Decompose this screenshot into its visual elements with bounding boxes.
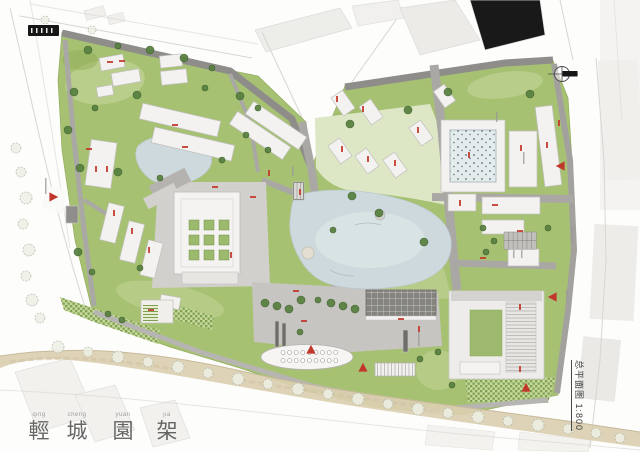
courtyard-garden-cell [219,220,229,230]
oval-dot [301,359,305,363]
sketch-tree [52,341,64,353]
building [448,194,476,211]
building [275,321,279,347]
watermark-pinyin: qing [24,412,54,419]
sketch-tree [35,313,45,323]
building-label-mark [336,96,338,102]
tree [114,168,122,176]
building-label-mark [546,142,548,148]
sketch-tree [41,16,49,24]
u-building-roofbar [451,291,542,301]
sketch-tree [292,383,304,395]
parking-cell [532,241,537,250]
oval-dot [334,359,338,363]
watermark-char-3: yuan 園 [108,412,138,443]
watermark-glyph: 架 [152,419,182,443]
tree [449,382,455,388]
tree [526,90,534,98]
parking-cell [518,241,523,250]
parking-cell [509,232,514,241]
site-plan-page: qing 輕 cheng 城 yuan 園 jia 架 总平面图 1:800 [0,0,640,452]
tree [236,92,244,100]
glass-roof-hall [366,290,436,316]
u-building-southbar [460,362,500,374]
tree [297,329,303,335]
tree [255,105,261,111]
u-building-terrace [506,302,536,372]
logo-glyphs [31,28,56,33]
tree [339,302,347,310]
building-label-mark [480,257,486,259]
main-building-annex [182,272,238,284]
tree [273,302,281,310]
building-label-mark [95,166,97,172]
tree [348,192,356,200]
building-label-mark [519,304,521,310]
courtyard-garden-cell [204,220,214,230]
annotation-mark [523,152,525,164]
oval-dot [288,351,292,355]
sketch-tree [203,368,213,378]
courtyard-garden-cell [189,250,199,260]
lake-highlight [315,212,425,268]
parking-cell [522,241,527,250]
watermark-pinyin: yuan [108,412,138,419]
sketch-tree [532,419,544,431]
tree [404,106,412,114]
building [282,323,286,349]
parking-cell [532,232,537,241]
building [403,330,408,352]
building [482,197,540,214]
parking-cell [513,241,518,250]
tree [265,147,271,153]
tree [70,88,78,96]
building-label-mark [520,145,522,151]
building-label-mark [517,230,523,232]
tree [115,43,121,49]
tree [105,311,111,317]
annotation-mark [45,178,47,194]
sketch-tree [143,357,153,367]
tree [64,126,72,134]
sketch-tree [11,143,21,153]
building-label-mark [119,60,125,62]
tree [219,157,225,163]
building-label-mark [398,318,404,320]
courtyard-garden-cell [219,235,229,245]
sketch-tree [232,373,244,385]
building-label-mark [107,61,113,63]
tree [375,209,383,217]
watermark-pinyin: cheng [62,412,92,419]
tree [297,296,305,304]
oval-dot [334,351,338,355]
annotation-mark [496,112,498,122]
building-label-mark [418,326,420,332]
sketch-tree [18,219,28,229]
tree [261,299,269,307]
road [452,263,556,266]
north-arrow-bar [563,71,578,77]
annotation-mark [292,166,294,176]
parking-cell [527,241,532,250]
annotation-mark [521,250,523,258]
tree [480,225,486,231]
building-label-mark [148,309,154,311]
courtyard-garden-grid [189,220,229,260]
tree [243,132,249,138]
parking-cell [527,232,532,241]
watermark-char-4: jia 架 [152,412,182,443]
oval-dot [294,359,298,363]
parking-cell [518,232,523,241]
building-label-mark [250,196,256,198]
street-line [560,0,573,60]
sketch-tree [503,416,513,426]
u-building-courtyard [470,310,502,356]
tree [435,349,441,355]
annotation-mark [418,332,420,346]
sketch-tree [23,244,35,256]
building-label-mark [106,166,108,172]
tree [74,248,82,256]
planter-circle [302,247,314,259]
building [160,69,187,86]
oval-dot [301,351,305,355]
watermark-glyph: 城 [62,419,92,443]
oval-dot [288,359,292,363]
tree [351,305,359,313]
building-label-mark [492,204,498,206]
building-label-mark [172,124,178,126]
building-label-mark [468,152,470,158]
courtyard-garden-cell [189,220,199,230]
tree [444,88,452,96]
building [66,206,78,223]
courtyard-garden-cell [189,235,199,245]
building-label-mark [301,320,307,322]
oval-dot [281,351,285,355]
sketch-tree [172,361,184,373]
sketch-tree [591,428,601,438]
oval-dot [327,359,331,363]
sketch-tree [443,408,453,418]
tree [133,91,141,99]
building-label-mark [362,106,364,112]
watermark-glyph: 輕 [24,419,54,443]
building-label-mark [341,146,343,152]
tree [483,249,489,255]
tree [76,164,84,172]
tree [420,238,428,246]
building-label-mark [417,127,419,133]
sketch-tree [21,271,31,281]
parking-cell [509,241,514,250]
parking-cell [504,241,509,250]
tree [89,269,95,275]
context-block [352,0,404,26]
tree [315,297,321,303]
tree [417,356,423,362]
building-label-mark [148,247,150,253]
dropoff-oval [261,345,353,370]
building [159,54,182,68]
annotation-mark [566,290,568,302]
oval-dot [327,351,331,355]
context-block [590,224,639,321]
tree [491,238,497,244]
sketch-tree [383,399,393,409]
annotation-mark [513,250,515,258]
building-label-mark [268,170,270,176]
building-label-mark [459,200,461,206]
tree [146,46,154,54]
sketch-tree [615,433,625,443]
oval-dot [321,351,325,355]
sketch-tree [412,403,424,415]
site-plan-canvas [0,0,640,452]
tree [346,120,354,128]
courtyard-garden-cell [204,250,214,260]
context-block [255,8,352,52]
building-label-mark [367,156,369,162]
tree [157,175,163,181]
parking-cell [504,232,509,241]
sketch-tree [263,379,273,389]
drawing-scale-label: 总平面图 1:800 [571,360,586,431]
watermark-char-1: qing 輕 [24,412,54,443]
watermark-glyph: 園 [108,419,138,443]
building-label-mark [293,290,299,292]
tree [327,299,335,307]
oval-dot [281,359,285,363]
annotation-mark [571,226,573,242]
sketch-tree [83,347,93,357]
tree [119,317,125,323]
building-label-mark [394,160,396,166]
context-block [470,0,545,50]
street-line [352,20,396,82]
context-block [400,0,480,55]
sketch-tree [112,351,124,363]
trellis [375,363,415,376]
parking-grid [504,232,536,249]
sketch-tree [26,294,38,306]
sketch-tree [16,167,26,177]
tree [209,65,215,71]
tree [202,85,208,91]
kiosk-stripes [294,183,303,199]
building-label-mark [113,210,115,216]
building-label-mark [558,120,560,126]
building-label-mark [182,146,188,148]
parking-cell [513,232,518,241]
sketch-tree [88,26,96,34]
parking-cell [522,232,527,241]
oval-dot [294,351,298,355]
sketch-tree [20,192,32,204]
sketch-tree [352,393,364,405]
oval-dot [307,359,311,363]
tree [180,54,188,62]
courtyard-garden-cell [219,250,229,260]
main-building [174,192,240,274]
building-label-mark [212,186,218,188]
watermark-pinyin: jia [152,412,182,419]
oval-dot [314,359,318,363]
pergola-stripes [143,305,158,321]
tree [137,265,143,271]
tree [92,105,98,111]
sketch-tree [323,389,333,399]
building-label-mark [519,366,521,372]
context-block [425,425,495,450]
publisher-logo [28,25,59,36]
speckled-pool-court [450,130,496,182]
sketch-tree [472,411,484,423]
watermark-char-2: cheng 城 [62,412,92,443]
building [508,249,539,266]
building-label-mark [131,228,133,234]
context-block [84,6,106,21]
tree [545,225,551,231]
tree [285,305,293,313]
tree [330,227,336,233]
building-label-mark [86,148,92,150]
building-label-mark [230,252,232,258]
building-label-mark [299,189,301,195]
oval-dot [321,359,325,363]
courtyard-garden-cell [204,235,214,245]
tree [84,46,92,54]
